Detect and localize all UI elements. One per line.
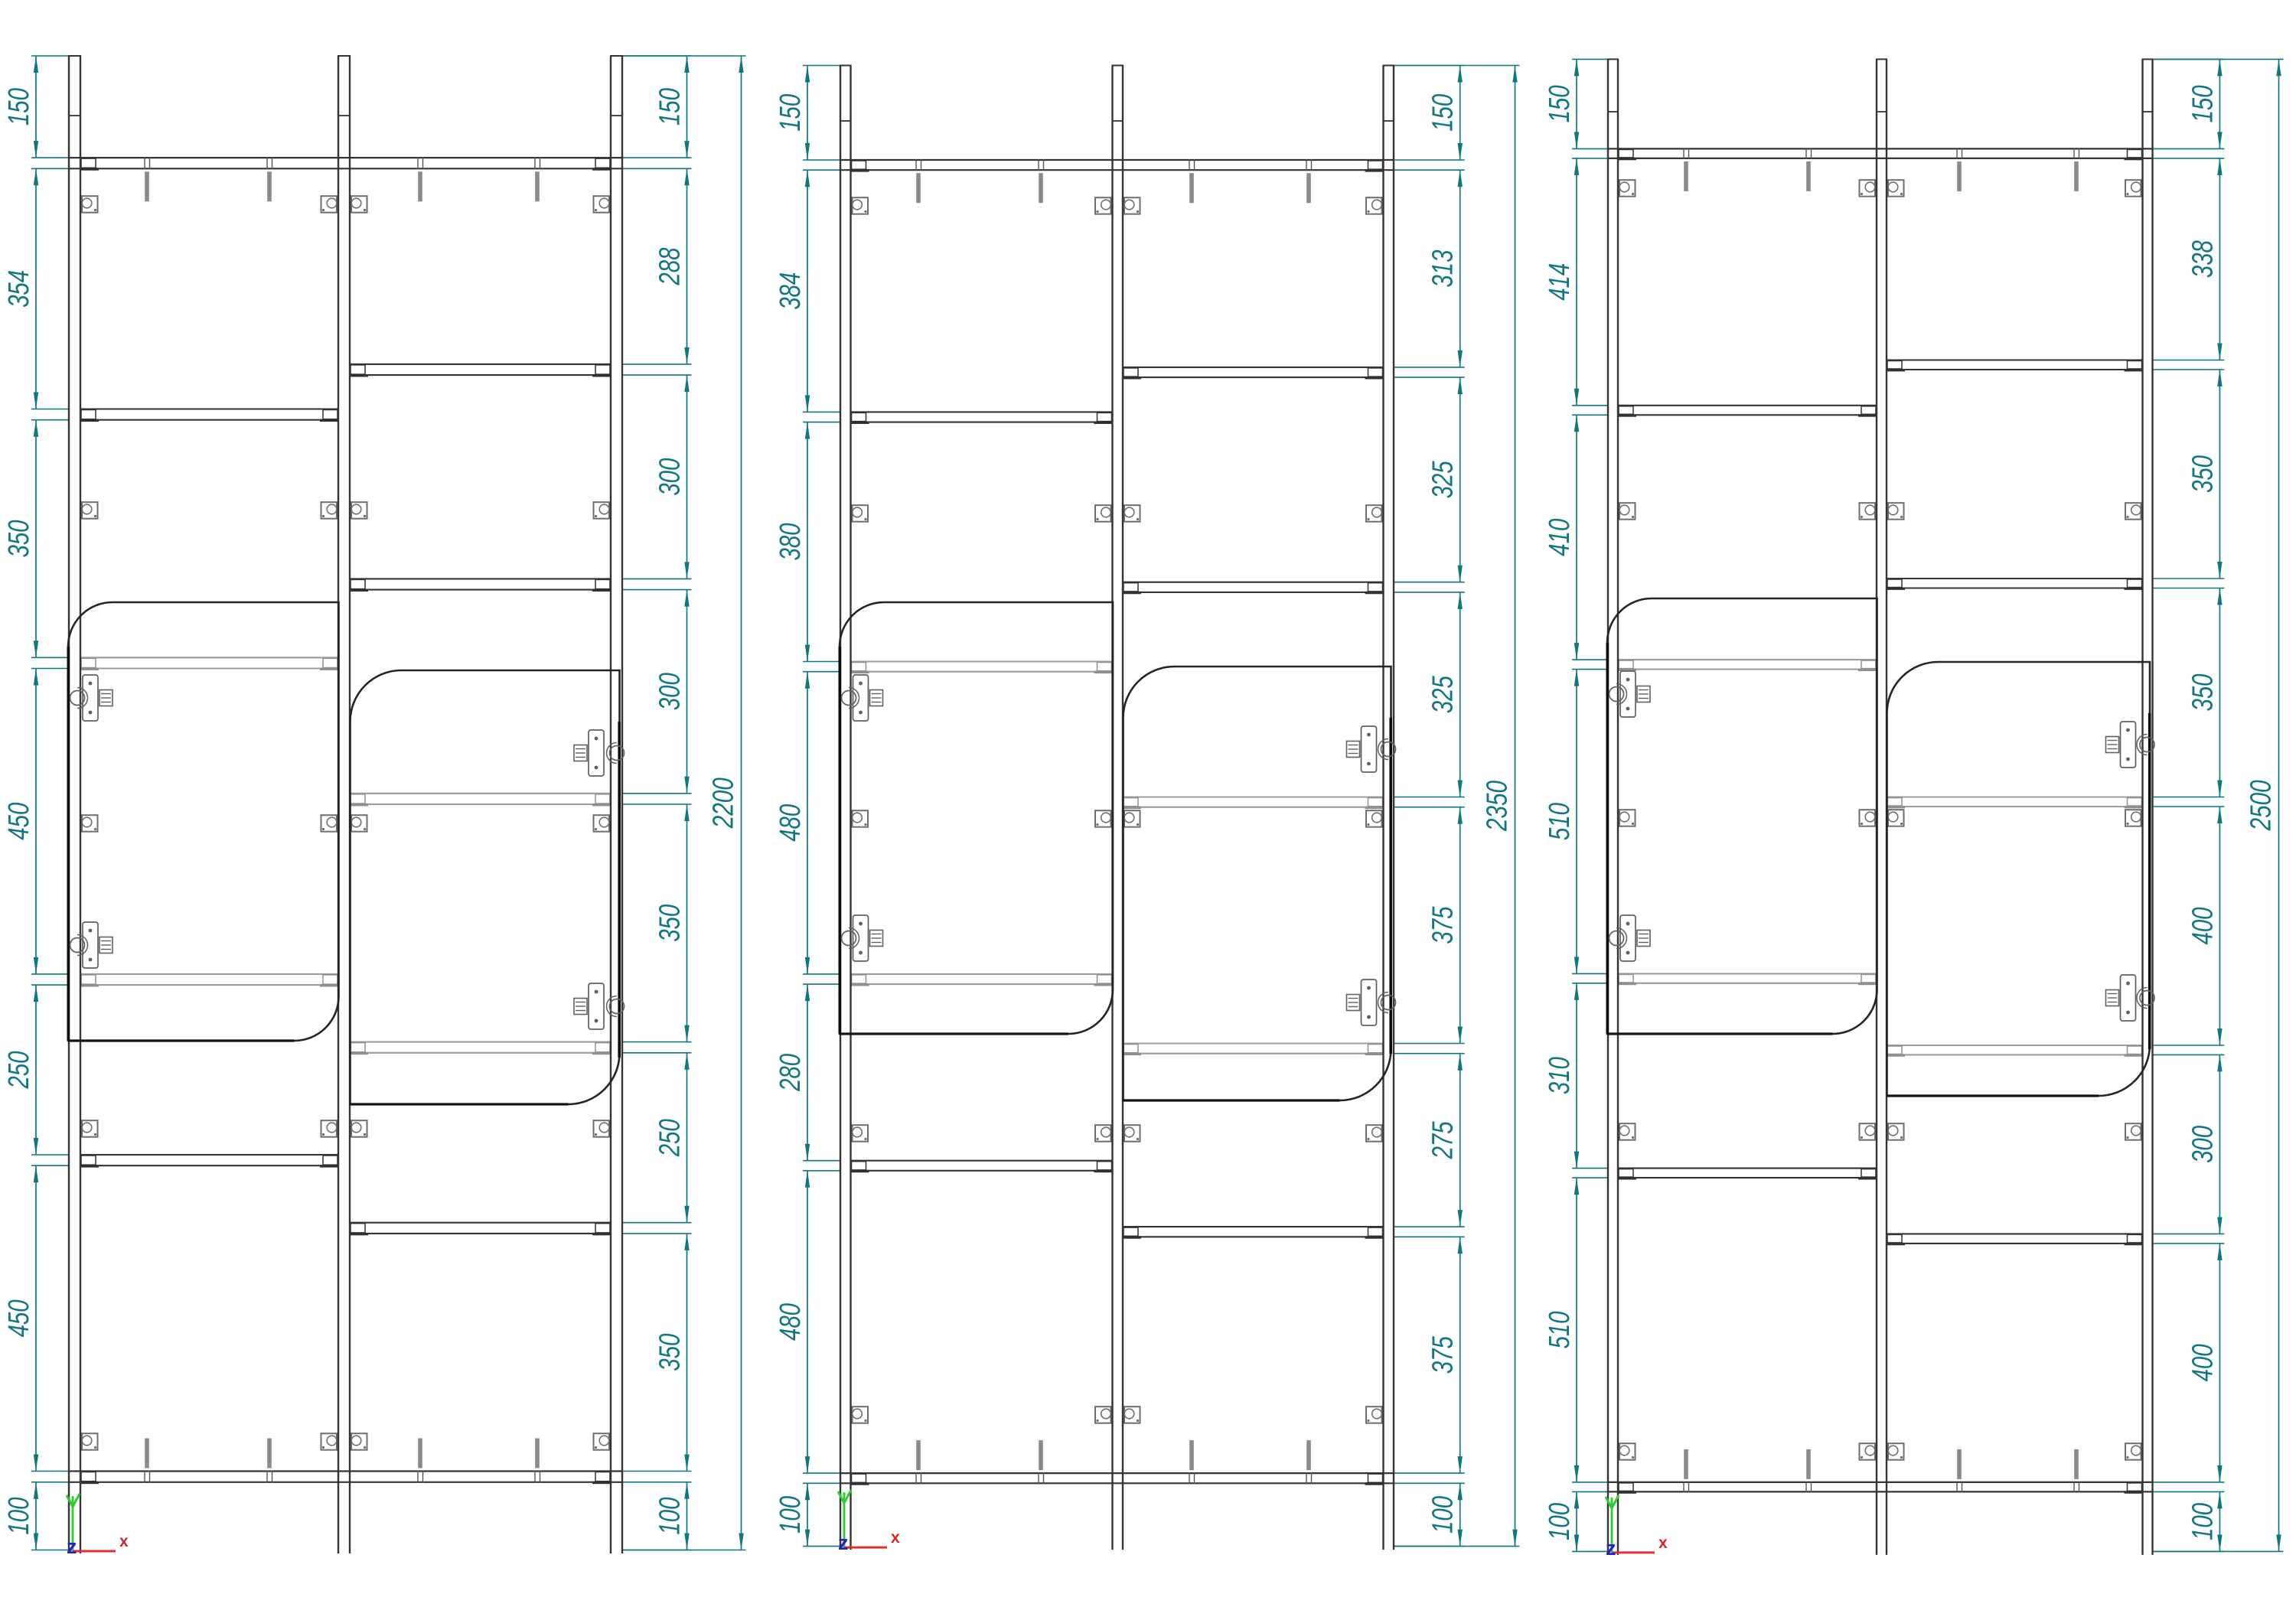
svg-text:310: 310 xyxy=(1544,1057,1576,1094)
svg-text:2200: 2200 xyxy=(708,777,740,829)
svg-text:325: 325 xyxy=(1427,461,1459,499)
svg-text:480: 480 xyxy=(775,804,807,842)
svg-text:450: 450 xyxy=(3,803,35,840)
svg-text:150: 150 xyxy=(1544,85,1576,122)
svg-text:275: 275 xyxy=(1427,1121,1459,1159)
svg-text:350: 350 xyxy=(654,1334,687,1371)
svg-text:150: 150 xyxy=(654,88,687,125)
svg-text:450: 450 xyxy=(3,1299,35,1337)
svg-text:384: 384 xyxy=(775,272,807,310)
svg-text:300: 300 xyxy=(654,673,687,710)
svg-text:2350: 2350 xyxy=(1482,781,1514,832)
svg-text:z: z xyxy=(1606,1537,1616,1560)
svg-text:z: z xyxy=(838,1531,849,1554)
svg-text:250: 250 xyxy=(654,1119,687,1157)
svg-text:350: 350 xyxy=(654,905,687,942)
svg-text:z: z xyxy=(67,1535,77,1558)
svg-text:350: 350 xyxy=(3,520,35,558)
svg-text:100: 100 xyxy=(2187,1503,2219,1540)
svg-text:x: x xyxy=(1658,1534,1668,1552)
svg-text:400: 400 xyxy=(2187,1344,2219,1381)
svg-text:100: 100 xyxy=(654,1498,687,1535)
svg-text:375: 375 xyxy=(1427,906,1459,944)
svg-text:338: 338 xyxy=(2187,240,2219,278)
svg-text:150: 150 xyxy=(3,88,35,125)
svg-text:510: 510 xyxy=(1544,1312,1576,1349)
svg-text:100: 100 xyxy=(775,1496,807,1534)
svg-text:380: 380 xyxy=(775,523,807,561)
svg-text:313: 313 xyxy=(1427,250,1459,288)
svg-text:375: 375 xyxy=(1427,1336,1459,1374)
svg-text:100: 100 xyxy=(1544,1503,1576,1540)
svg-text:2500: 2500 xyxy=(2245,780,2278,831)
svg-text:150: 150 xyxy=(2187,85,2219,122)
svg-text:480: 480 xyxy=(775,1303,807,1341)
svg-text:280: 280 xyxy=(775,1054,807,1092)
svg-text:510: 510 xyxy=(1544,803,1576,840)
svg-text:288: 288 xyxy=(654,248,687,286)
svg-text:100: 100 xyxy=(3,1498,35,1535)
svg-text:100: 100 xyxy=(1427,1496,1459,1534)
svg-text:325: 325 xyxy=(1427,676,1459,714)
svg-text:300: 300 xyxy=(654,458,687,496)
svg-text:350: 350 xyxy=(2187,455,2219,493)
svg-text:300: 300 xyxy=(2187,1126,2219,1163)
svg-text:250: 250 xyxy=(3,1051,35,1090)
svg-text:410: 410 xyxy=(1544,519,1576,556)
svg-text:150: 150 xyxy=(1427,94,1459,132)
svg-text:350: 350 xyxy=(2187,674,2219,712)
svg-text:414: 414 xyxy=(1544,263,1576,301)
svg-text:400: 400 xyxy=(2187,908,2219,945)
svg-text:x: x xyxy=(891,1529,900,1547)
svg-text:354: 354 xyxy=(3,270,35,308)
svg-text:x: x xyxy=(119,1533,129,1550)
svg-text:150: 150 xyxy=(775,94,807,132)
